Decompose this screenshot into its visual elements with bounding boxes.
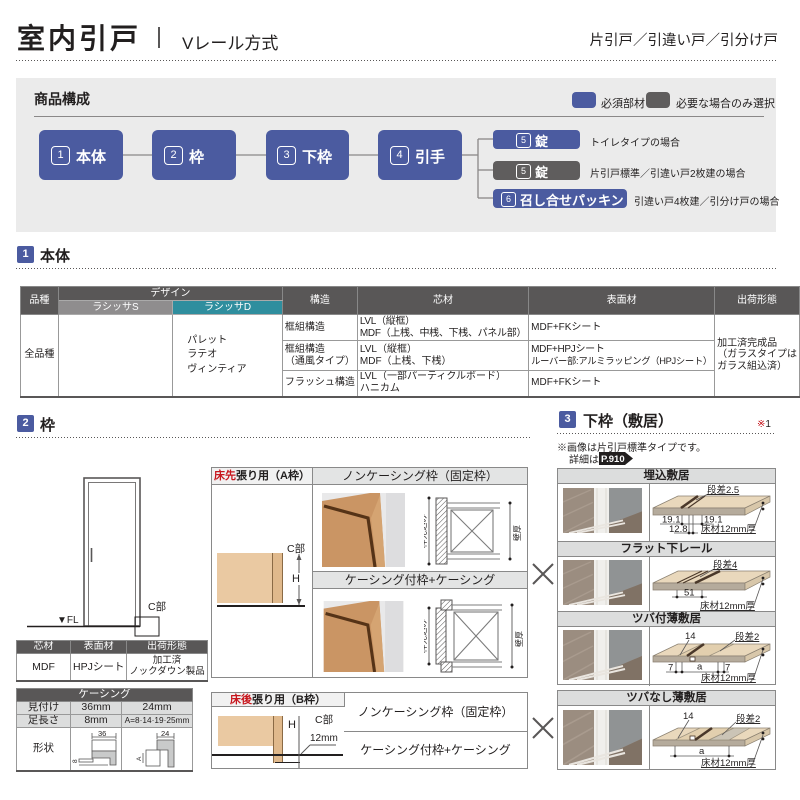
svg-text:床材12mm厚: 床材12mm厚 [701, 672, 756, 684]
svg-text:C部: C部 [148, 600, 166, 613]
svg-text:壁厚: 壁厚 [514, 631, 524, 647]
svg-text:段差4: 段差4 [713, 559, 737, 571]
svg-text:枠見込み: 枠見込み [424, 618, 428, 653]
svg-text:14: 14 [685, 631, 696, 642]
svg-text:床材12mm厚: 床材12mm厚 [701, 523, 756, 535]
svg-text:51: 51 [684, 588, 695, 599]
svg-text:P.910: P.910 [601, 454, 625, 465]
svg-text:床材12mm厚: 床材12mm厚 [701, 757, 756, 769]
svg-text:▼FL: ▼FL [57, 615, 79, 626]
svg-text:8: 8 [72, 759, 79, 763]
svg-text:枠見込み: 枠見込み [424, 513, 428, 548]
svg-text:A: A [136, 756, 143, 761]
svg-text:7: 7 [725, 663, 730, 674]
svg-text:a: a [699, 746, 705, 757]
svg-text:36: 36 [98, 729, 106, 738]
svg-text:24: 24 [161, 729, 169, 738]
svg-text:段差2: 段差2 [735, 631, 759, 643]
svg-text:7: 7 [668, 663, 673, 674]
svg-text:段差2.5: 段差2.5 [707, 484, 739, 496]
svg-text:床材12mm厚: 床材12mm厚 [700, 600, 755, 611]
svg-text:a: a [697, 662, 703, 673]
svg-text:壁厚: 壁厚 [512, 525, 522, 541]
svg-text:12.8: 12.8 [669, 524, 688, 535]
svg-text:14: 14 [683, 711, 694, 722]
svg-text:段差2: 段差2 [736, 713, 760, 725]
